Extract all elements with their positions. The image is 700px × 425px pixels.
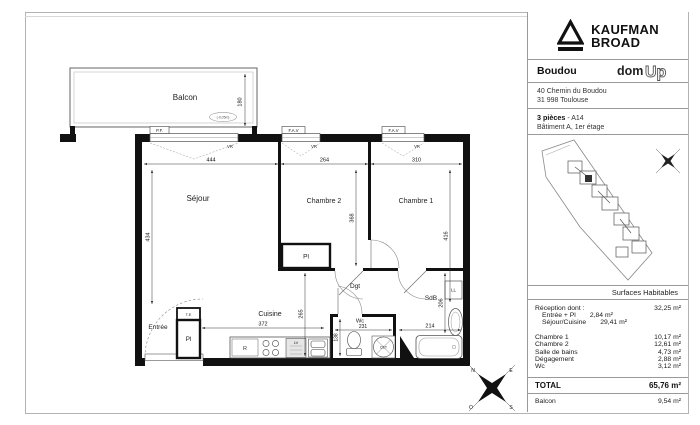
floor-plan: Balcon 180 (-0,05m): [60, 60, 515, 420]
fridge-label: R: [243, 346, 247, 352]
domup-logo: dom Up: [617, 61, 679, 81]
table-row: Wc 3,12 m²: [528, 363, 688, 370]
balcony-value: 9,54 m²: [658, 398, 681, 405]
title-block: KAUFMAN BROAD Boudou dom Up 40 Chemin du…: [527, 12, 688, 412]
room-label-chambre1: Chambre 1: [399, 198, 434, 205]
window-fav-ch1: F.A.V VR: [382, 127, 424, 157]
table-row: Dégagement 2,88 m²: [528, 356, 688, 363]
dim-cuisine-w: 372: [258, 322, 267, 328]
window-label-fav: F.A.V: [288, 128, 298, 133]
table-row: Chambre 2 12,61 m²: [528, 341, 688, 348]
window-label-fav: F.A.V: [388, 128, 398, 133]
unit-location: Bâtiment A, 1er étage: [537, 123, 679, 132]
dim-chambre2-h: 368: [350, 213, 356, 222]
surfaces-header-label: Surfaces Habitables: [612, 288, 678, 297]
room-label-balcon: Balcon: [173, 93, 197, 102]
brand-line2: BROAD: [591, 36, 659, 49]
row-label: Réception dont :: [535, 305, 585, 312]
dishwasher-label: LV: [294, 340, 299, 345]
total-value: 65,76 m²: [649, 381, 681, 390]
unit-info-block: 3 pièces - A14 Bâtiment A, 1er étage: [528, 109, 688, 135]
dim-sejour-w: 444: [206, 158, 215, 164]
level-stamp: (-0,05m): [217, 116, 230, 120]
domup-logo-dom: dom: [617, 64, 643, 78]
row-label: Entrée + Pl: [542, 312, 576, 319]
room-label-sejour: Séjour: [186, 194, 209, 203]
row-value: 32,25 m²: [654, 305, 681, 312]
kaufman-broad-logo: KAUFMAN BROAD: [528, 12, 688, 60]
unit-type: 3 pièces: [537, 113, 565, 122]
kaufman-broad-triangle-icon: [557, 19, 584, 52]
row-label: Salle de bains: [535, 349, 578, 356]
window-fav-ch2: F.A.V VR: [282, 127, 320, 157]
balcony-label: Balcon: [535, 398, 556, 405]
row-value: 29,41 m²: [600, 319, 627, 326]
dim-sdb-h: 206: [439, 298, 445, 307]
cet-label: CET: [380, 346, 388, 350]
te-label: T.E: [186, 312, 192, 317]
dim-sdb-w: 214: [425, 324, 434, 330]
table-row: Salle de bains 4,73 m²: [528, 349, 688, 356]
room-label-chambre2: Chambre 2: [307, 198, 342, 205]
site-compass-icon: [656, 149, 680, 173]
row-value: 10,17 m²: [654, 334, 681, 341]
total-label: TOTAL: [535, 381, 561, 390]
row-label: Dégagement: [535, 356, 574, 363]
site-plan: [528, 135, 688, 286]
row-value: 2,88 m²: [658, 356, 681, 363]
unit-separator: -: [567, 115, 569, 122]
dim-chambre1-h: 416: [444, 231, 450, 240]
address-line2: 31 998 Toulouse: [537, 96, 679, 105]
surfaces-header: Surfaces Habitables: [528, 286, 688, 300]
window-label-pf: P.F.: [156, 128, 163, 133]
site-plan-drawing: [528, 135, 687, 285]
room-label-entree: Entrée: [148, 324, 168, 331]
table-subrow: Entrée + Pl 2,84 m²: [528, 312, 688, 319]
table-row: Chambre 1 10,17 m²: [528, 334, 688, 341]
room-label-sdb: SdB: [425, 295, 437, 302]
unit-reference: A14: [571, 115, 583, 122]
dim-sejour-h: 434: [146, 232, 152, 241]
kitchen-fixtures: R LV: [230, 337, 330, 358]
window-pf: P.F. VR: [150, 127, 238, 160]
compass-n: N: [471, 368, 475, 374]
brand-line1: KAUFMAN: [591, 23, 659, 36]
balcony: Balcon 180 (-0,05m): [70, 68, 257, 134]
dim-balcon-depth: 180: [238, 97, 244, 106]
row-value: 4,73 m²: [658, 349, 681, 356]
wc-fixtures: CET: [347, 332, 396, 359]
floorplan-sheet: { "title_block": { "brand_line1": "KAUFM…: [0, 0, 700, 425]
row-label: Séjour/Cuisine: [542, 319, 586, 326]
row-label: Chambre 1: [535, 334, 569, 341]
washer-label: LL: [451, 288, 457, 293]
row-value: 12,61 m²: [654, 341, 681, 348]
domup-logo-up: Up: [645, 64, 667, 81]
closet-label: Pl: [186, 336, 192, 343]
table-subrow: Séjour/Cuisine 29,41 m²: [528, 319, 688, 326]
vr-label: VR: [414, 144, 420, 149]
address-line1: 40 Chemin du Boudou: [537, 87, 679, 96]
vr-label: VR: [227, 144, 233, 149]
exterior-walls: [60, 134, 470, 366]
dim-wc-h: 138: [334, 333, 340, 342]
surfaces-table: Réception dont : 32,25 m² Entrée + Pl 2,…: [528, 300, 688, 378]
project-row: Boudou dom Up: [528, 60, 688, 83]
dim-cuisine-h: 265: [299, 309, 305, 318]
unit-location-marker: [585, 175, 592, 182]
bathroom-fixtures: LL: [416, 281, 463, 359]
dim-chambre2-w: 264: [320, 158, 329, 164]
balcony-row: Balcon 9,54 m²: [528, 394, 688, 412]
project-name: Boudou: [537, 65, 577, 77]
compass-e: E: [509, 368, 513, 374]
windows: P.F. VR F.A.V VR F.A.V VR: [150, 127, 424, 160]
row-value: 2,84 m²: [590, 312, 613, 319]
room-label-cuisine: Cuisine: [258, 311, 281, 318]
table-row-reception: Réception dont : 32,25 m²: [528, 300, 688, 312]
compass-icon: N E O S: [469, 365, 515, 411]
dim-chambre1-w: 310: [412, 158, 421, 164]
address-block: 40 Chemin du Boudou 31 998 Toulouse: [528, 83, 688, 109]
row-label: Chambre 2: [535, 341, 569, 348]
total-row: TOTAL 65,76 m²: [528, 378, 688, 394]
row-value: 3,12 m²: [658, 363, 681, 370]
compass-o: O: [469, 405, 473, 411]
room-label-dgt: Dgt: [350, 283, 360, 290]
row-label: Wc: [535, 363, 545, 370]
closet-label: Pl: [303, 254, 309, 261]
dim-wc-w: 231: [359, 324, 368, 330]
compass-s: S: [509, 405, 513, 411]
